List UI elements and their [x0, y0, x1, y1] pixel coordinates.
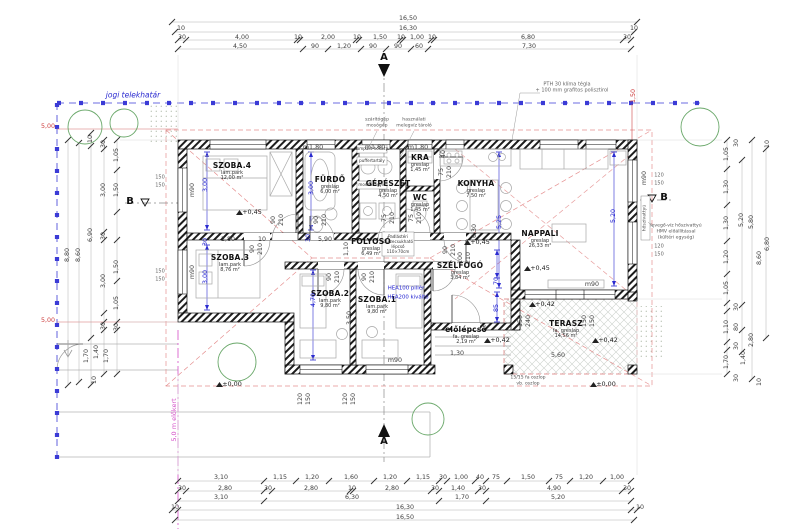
floor-plan-canvas: SZOBA.4lam.park12,00 m²FÜRDŐgreslap6,00 … — [0, 0, 800, 529]
dimension-chains — [65, 19, 769, 523]
floor-plan-drawing — [0, 0, 800, 529]
setback-lines — [57, 104, 632, 322]
